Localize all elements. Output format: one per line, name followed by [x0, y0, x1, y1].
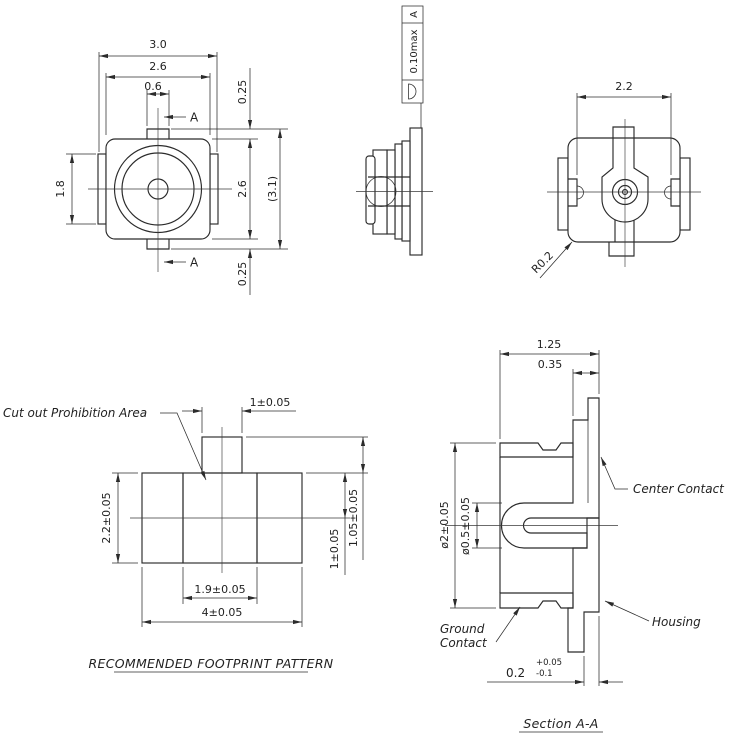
dim-text-dia2: ø2±0.05	[438, 501, 451, 548]
dim-footprint-gap: 1.9±0.05	[183, 567, 257, 604]
dim-text-fp-w: 4±0.05	[202, 606, 243, 619]
back-right-wing	[680, 158, 690, 230]
center-contact-leader	[601, 457, 628, 489]
dim-text-3-0: 3.0	[149, 38, 167, 51]
section-title-block: Section A-A	[519, 716, 603, 732]
section-ground-top-wall	[500, 443, 573, 457]
dim-text-0-25-bottom: 0.25	[236, 262, 249, 287]
dim-footprint-pad-width: 1±0.05	[182, 396, 296, 433]
callout-center-contact: Center Contact	[601, 457, 725, 496]
dim-footprint-pad-height: 1.05±0.05	[246, 437, 368, 560]
front-view: A A 3.0 2.6 0.6 1.8	[54, 38, 288, 295]
dim-text-2-6-top: 2.6	[149, 60, 167, 73]
housing-label: Housing	[652, 615, 701, 629]
footprint-cutout-callout: Cut out Prohibition Area	[3, 406, 206, 480]
front-outline	[88, 108, 232, 272]
side-view: 0.10max A	[356, 6, 433, 255]
back-bottom-tab	[609, 242, 634, 256]
dim-section-gap: 0.2 +0.05 -0.1	[487, 616, 623, 686]
profile-of-surface-icon	[409, 84, 417, 99]
dim-text-pad-h: 1.05±0.05	[347, 489, 360, 547]
ground-contact-label-line1: Ground	[440, 622, 485, 636]
dim-back-corner-radius: R0.2	[529, 242, 572, 278]
section-letter-bottom: A	[190, 256, 199, 270]
dim-text-0-35: 0.35	[538, 358, 563, 371]
dim-text-1-25: 1.25	[537, 338, 562, 351]
dim-text-0-2: 0.2	[506, 666, 525, 680]
section-marker-bottom: A	[164, 256, 199, 270]
dim-section-width: 1.25	[500, 338, 599, 439]
dim-text-1-8: 1.8	[54, 180, 67, 198]
housing-leader	[605, 601, 649, 621]
cutout-label: Cut out Prohibition Area	[3, 406, 147, 420]
dim-text-r0-2: R0.2	[529, 249, 556, 276]
footprint-title-block: RECOMMENDED FOOTPRINT PATTERN	[89, 656, 334, 672]
dim-footprint-width: 4±0.05	[142, 567, 302, 627]
side-outline	[356, 128, 433, 255]
section-ground-bottom-wall	[500, 593, 573, 608]
callout-ground-contact: Ground Contact	[440, 607, 520, 650]
center-contact-label: Center Contact	[633, 482, 725, 496]
technical-drawing-sheet: A A 3.0 2.6 0.6 1.8	[0, 0, 729, 736]
dim-text-2-6-right: 2.6	[236, 180, 249, 198]
dim-text-3-1: (3.1)	[266, 176, 279, 202]
dim-text-0-25-top: 0.25	[236, 80, 249, 105]
side-body-step2	[387, 150, 395, 234]
section-housing-body	[568, 518, 599, 652]
dim-text-2-2: 2.2	[615, 80, 633, 93]
ground-contact-leader	[496, 607, 520, 642]
callout-housing: Housing	[605, 601, 701, 629]
dim-text-dia05: ø0.5±0.05	[459, 497, 472, 555]
dim-text-pad-w: 1±0.05	[250, 396, 291, 409]
section-letter-top: A	[190, 111, 199, 125]
dim-text-tol-minus: -0.1	[536, 669, 553, 679]
section-title: Section A-A	[523, 716, 598, 731]
back-view: 2.2 R0.2	[529, 80, 701, 278]
back-left-wing	[558, 158, 568, 230]
side-body-cap	[366, 156, 375, 224]
footprint-title: RECOMMENDED FOOTPRINT PATTERN	[89, 656, 334, 671]
dim-text-fp-h: 2.2±0.05	[100, 492, 113, 543]
dim-text-gap: 1.9±0.05	[194, 583, 245, 596]
cutout-leader	[160, 413, 206, 480]
dim-front-stem-width: 0.6	[144, 80, 169, 126]
dim-text-half-h: 1±0.05	[328, 529, 341, 570]
fcf-tolerance: 0.10max	[409, 29, 420, 73]
dim-footprint-half-height: 1±0.05	[328, 473, 345, 575]
back-top-stem	[613, 127, 634, 138]
ground-contact-label-line2: Contact	[440, 636, 488, 650]
section-view: 1.25 0.35 ø2±0.05 ø0.5±0.05 0.2 +0.05 -0	[438, 338, 725, 732]
feature-control-frame: 0.10max A	[402, 6, 423, 128]
side-flange	[402, 141, 410, 241]
footprint-view: Cut out Prohibition Area 1±0.05 2.2±0.05…	[3, 396, 368, 672]
fcf-datum: A	[409, 11, 420, 18]
dim-text-tol-plus: +0.05	[536, 658, 562, 668]
dim-text-0-6: 0.6	[144, 80, 162, 93]
dim-section-lead-width: 0.35	[538, 358, 599, 416]
dim-section-bore-dia: ø0.5±0.05	[459, 497, 502, 555]
